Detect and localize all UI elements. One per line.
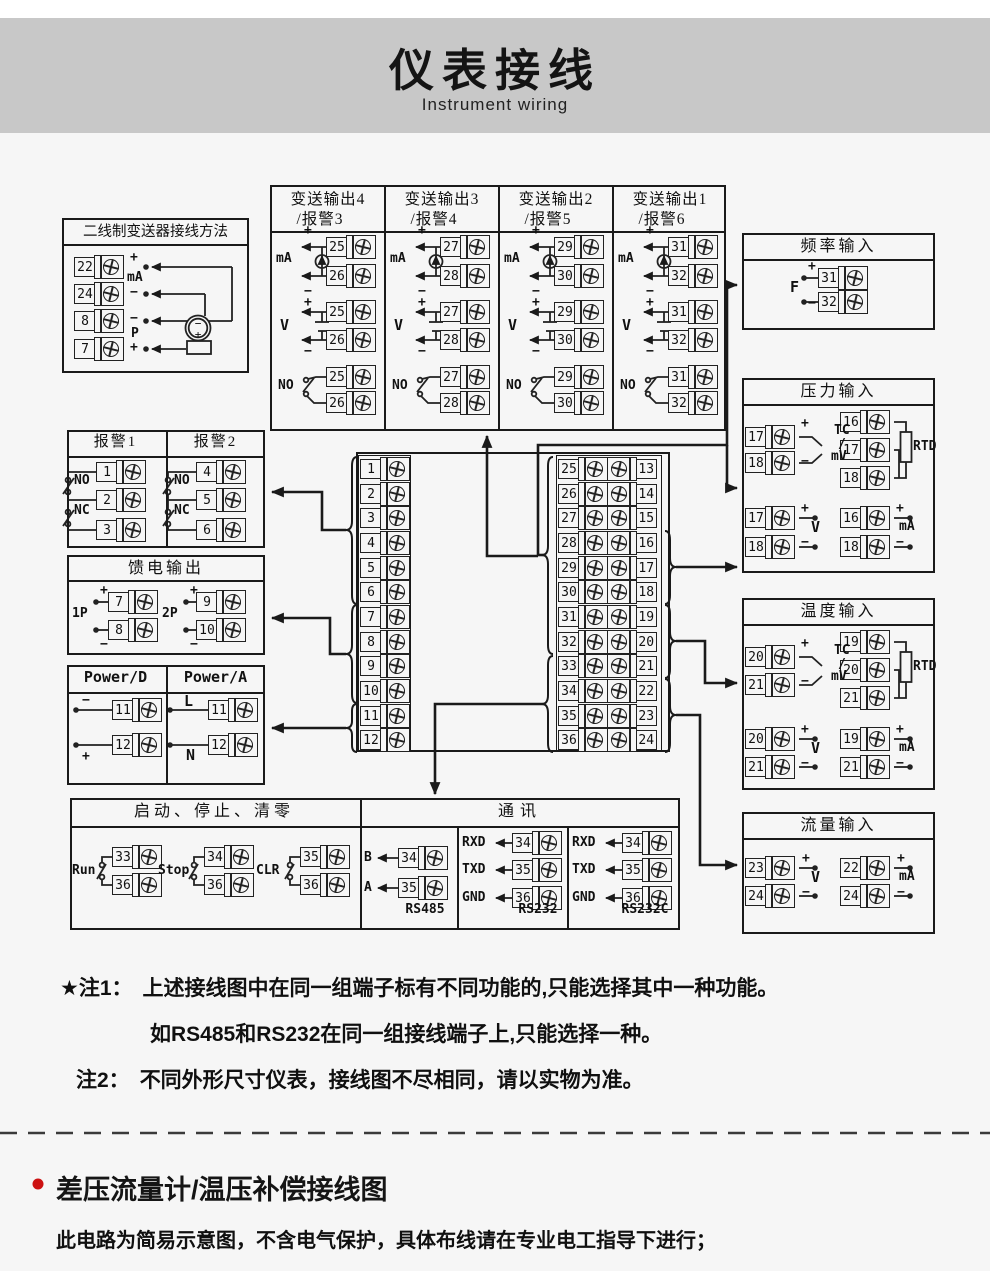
terminal: 17 <box>745 425 795 449</box>
screw-icon <box>102 257 121 276</box>
terminal: 11 <box>112 698 162 722</box>
screw-icon <box>696 330 715 349</box>
terminal-row: 3018 <box>558 580 657 604</box>
terminal: 5 <box>196 488 246 512</box>
terminal: 36 <box>300 873 350 897</box>
terminal: 31 <box>668 235 718 259</box>
screw-icon <box>232 875 251 894</box>
polarity-label: − <box>808 297 816 311</box>
terminal: 9 <box>196 590 246 614</box>
terminal: 30 <box>554 264 604 288</box>
terminal: 5 <box>360 556 410 580</box>
terminal: 12 <box>208 733 258 757</box>
terminal-row: 2715 <box>558 506 657 530</box>
pin-label: TXD <box>572 863 595 877</box>
polarity-label: − <box>801 536 809 550</box>
polarity-label: + <box>802 852 810 866</box>
polarity-label: + <box>896 723 904 737</box>
page-title: 仪表接线 <box>0 34 990 99</box>
screw-icon <box>124 462 143 481</box>
terminal: 18 <box>745 451 795 475</box>
polarity-label: − <box>646 345 654 359</box>
screw-icon <box>586 730 605 749</box>
signal-label: mA <box>504 252 520 266</box>
alarm2-title: 报警2 <box>166 430 265 454</box>
screw-icon <box>468 266 487 285</box>
screw-icon <box>388 533 407 552</box>
screw-icon <box>609 607 628 626</box>
clr-label: CLR <box>256 864 279 878</box>
screw-icon <box>773 729 792 748</box>
comm-title: 通讯 <box>360 799 680 825</box>
screw-icon <box>868 858 887 877</box>
terminal: 36 <box>112 873 162 897</box>
terminal-row: 2614 <box>558 482 657 506</box>
terminal: 10 <box>360 679 410 703</box>
feed-box-title: 馈电输出 <box>69 557 263 582</box>
screw-icon <box>224 620 243 639</box>
signal-label: V <box>280 318 289 332</box>
terminal-row: 2513 <box>558 457 657 481</box>
note-1-label: ★注1： <box>60 972 133 1002</box>
terminal: 16 <box>840 506 890 530</box>
screw-icon <box>609 656 628 675</box>
terminal: 28 <box>440 264 490 288</box>
polarity-label: − <box>802 886 810 900</box>
screw-icon <box>224 592 243 611</box>
signal-label: P <box>131 327 139 341</box>
run-label: Run <box>72 864 95 878</box>
screw-icon <box>650 860 669 879</box>
footer-heading: 差压流量计/温压补偿接线图 <box>56 1168 388 1207</box>
polarity-label: + <box>896 502 904 516</box>
divider <box>272 231 724 233</box>
flow-box-title: 流量输入 <box>744 814 933 840</box>
pin-label: GND <box>572 891 595 905</box>
screw-icon <box>586 508 605 527</box>
signal-label: RTD <box>913 440 936 454</box>
terminal: 7 <box>108 590 158 614</box>
screw-icon <box>696 393 715 412</box>
terminal: 11 <box>360 704 410 728</box>
polarity-label: + <box>801 502 809 516</box>
terminal: 34 <box>398 846 448 870</box>
polarity-label: + <box>532 224 540 238</box>
screw-icon <box>868 660 887 679</box>
polarity-label: − <box>897 886 905 900</box>
screw-icon <box>388 730 407 749</box>
terminal: 6 <box>360 580 410 604</box>
screw-icon <box>468 393 487 412</box>
terminal: 20 <box>745 645 795 669</box>
pin-label: B <box>364 851 372 865</box>
polarity-label: − <box>82 694 90 708</box>
terminal: 18 <box>840 466 890 490</box>
screw-icon <box>586 484 605 503</box>
terminal-22: 22 <box>74 255 124 279</box>
signal-label: V <box>622 318 631 332</box>
divider <box>72 826 678 828</box>
terminal: 23 <box>745 856 795 880</box>
terminal: 26 <box>326 391 376 415</box>
terminal: 21 <box>745 673 795 697</box>
screw-icon <box>140 700 159 719</box>
terminal: 2 <box>360 482 410 506</box>
pin-label: TXD <box>462 863 485 877</box>
footer-note: 此电路为简易示意图，不含电气保护，具体布线请在专业电工指导下进行； <box>56 1224 716 1253</box>
terminal-row: 3624 <box>558 728 657 752</box>
screw-icon <box>540 860 559 879</box>
terminal: 31 <box>668 365 718 389</box>
terminal: 28 <box>440 328 490 352</box>
screw-icon <box>773 757 792 776</box>
screw-icon <box>468 302 487 321</box>
terminal-row: 3119 <box>558 605 657 629</box>
terminal: 4 <box>196 460 246 484</box>
screw-icon <box>773 886 792 905</box>
terminal-row: 3321 <box>558 654 657 678</box>
polarity-label: + <box>532 296 540 310</box>
screw-icon <box>868 468 887 487</box>
polarity-label: + <box>801 637 809 651</box>
screw-icon <box>582 302 601 321</box>
transmit-col-title: 变送输出1/报警6 <box>614 190 726 230</box>
screw-icon <box>354 266 373 285</box>
group-label: 2P <box>162 607 178 621</box>
terminal: 34 <box>512 831 562 855</box>
signal-label: mA <box>618 252 634 266</box>
screw-icon <box>609 582 628 601</box>
signal-label: RTD <box>913 660 936 674</box>
terminal: 8 <box>360 630 410 654</box>
screw-icon <box>609 706 628 725</box>
pin-label: RXD <box>462 836 485 850</box>
polarity-label: − <box>896 757 904 771</box>
terminal-row: 3523 <box>558 704 657 728</box>
screw-icon <box>140 735 159 754</box>
terminal: 31 <box>818 266 868 290</box>
screw-icon <box>868 632 887 651</box>
terminal: 26 <box>326 328 376 352</box>
rs232c-label: RS232C <box>614 903 676 917</box>
terminal: 25 <box>326 365 376 389</box>
terminal: 9 <box>360 654 410 678</box>
line-label: L <box>184 694 193 708</box>
screw-icon <box>582 266 601 285</box>
screw-icon <box>696 237 715 256</box>
signal-label: V <box>394 318 403 332</box>
contact-label: NO <box>174 474 190 488</box>
screw-icon <box>140 847 159 866</box>
screw-icon <box>468 237 487 256</box>
terminal: 24 <box>745 884 795 908</box>
terminal: 35 <box>398 876 448 900</box>
terminal: 19 <box>840 727 890 751</box>
screw-icon <box>388 484 407 503</box>
contact-label: NC <box>174 504 190 518</box>
screw-icon <box>846 268 865 287</box>
contact-label: NO <box>506 379 522 393</box>
contact-label: NC <box>74 504 90 518</box>
screw-icon <box>586 706 605 725</box>
screw-icon <box>582 237 601 256</box>
terminal: 36 <box>204 873 254 897</box>
screw-icon <box>136 592 155 611</box>
temperature-box-title: 温度输入 <box>744 600 933 626</box>
screw-icon <box>586 632 605 651</box>
terminal: 18 <box>840 535 890 559</box>
terminal: 3 <box>360 506 410 530</box>
polarity-label: + <box>130 251 138 265</box>
signal-label: mA <box>899 520 915 534</box>
header-band: 仪表接线 Instrument wiring <box>0 18 990 133</box>
screw-icon <box>868 537 887 556</box>
screw-icon <box>696 367 715 386</box>
terminal: 21 <box>745 755 795 779</box>
terminal: 33 <box>112 845 162 869</box>
signal-label: mV <box>831 450 847 464</box>
contact-label: NO <box>620 379 636 393</box>
terminal: 30 <box>554 391 604 415</box>
neutral-label: N <box>186 748 195 762</box>
screw-icon <box>388 459 407 478</box>
terminal: 29 <box>554 235 604 259</box>
screw-icon <box>124 490 143 509</box>
terminal-24: 24 <box>74 282 124 306</box>
screw-icon <box>354 330 373 349</box>
screw-icon <box>236 735 255 754</box>
terminal: 8 <box>108 618 158 642</box>
screw-icon <box>328 875 347 894</box>
rs485-label: RS485 <box>398 903 452 917</box>
contact-label: NO <box>74 474 90 488</box>
screw-icon <box>773 675 792 694</box>
screw-icon <box>586 582 605 601</box>
two-wire-box-title: 二线制变送器接线方法 <box>64 220 247 246</box>
terminal: 21 <box>840 755 890 779</box>
terminal: 29 <box>554 300 604 324</box>
runstop-title: 启动、停止、清零 <box>70 799 358 825</box>
terminal: 22 <box>840 856 890 880</box>
terminal: 17 <box>745 506 795 530</box>
terminal: 11 <box>208 698 258 722</box>
screw-icon <box>426 848 445 867</box>
terminal: 27 <box>440 235 490 259</box>
divider <box>69 692 263 694</box>
polarity-label: + <box>808 260 816 274</box>
polarity-label: − <box>801 455 809 469</box>
terminal: 32 <box>668 264 718 288</box>
divider <box>457 826 459 928</box>
signal-label: mA <box>276 252 292 266</box>
terminal-row: 3422 <box>558 679 657 703</box>
note-1: ★注1： 上述接线图中在同一组端子标有不同功能的,只能选择其中一种功能。 <box>60 972 778 1002</box>
signal-label: mA <box>899 741 915 755</box>
terminal-row: 3220 <box>558 630 657 654</box>
screw-icon <box>586 558 605 577</box>
screw-icon <box>388 607 407 626</box>
terminal: 34 <box>204 845 254 869</box>
pin-label: RXD <box>572 836 595 850</box>
pin-label: GND <box>462 891 485 905</box>
screw-icon <box>609 533 628 552</box>
screw-icon <box>224 490 243 509</box>
terminal: 20 <box>840 658 890 682</box>
screw-icon <box>388 582 407 601</box>
terminal: 12 <box>112 733 162 757</box>
screw-icon <box>586 459 605 478</box>
terminal: 3 <box>96 518 146 542</box>
page-subtitle: Instrument wiring <box>0 95 990 115</box>
screw-icon <box>224 520 243 539</box>
terminal: 32 <box>668 328 718 352</box>
screw-icon <box>868 440 887 459</box>
screw-icon <box>388 632 407 651</box>
screw-icon <box>388 508 407 527</box>
screw-icon <box>696 302 715 321</box>
screw-icon <box>773 427 792 446</box>
screw-icon <box>354 393 373 412</box>
pressure-box-title: 压力输入 <box>744 380 933 406</box>
terminal: 25 <box>326 300 376 324</box>
terminal: 18 <box>745 535 795 559</box>
divider <box>567 826 569 928</box>
note-2-text: 不同外形尺寸仪表，接线图不尽相同，请以实物为准。 <box>140 1064 644 1094</box>
terminal: 30 <box>554 328 604 352</box>
terminal: 10 <box>196 618 246 642</box>
screw-icon <box>868 729 887 748</box>
polarity-label: + <box>100 584 108 598</box>
terminal: 35 <box>622 858 672 882</box>
polarity-label: − <box>130 312 138 326</box>
terminal: 28 <box>440 391 490 415</box>
polarity-label: + <box>801 417 809 431</box>
screw-icon <box>609 508 628 527</box>
terminal: 31 <box>668 300 718 324</box>
screw-icon <box>388 706 407 725</box>
red-bullet-icon <box>33 1179 44 1190</box>
screw-icon <box>102 339 121 358</box>
screw-icon <box>328 847 347 866</box>
screw-icon <box>136 620 155 639</box>
screw-icon <box>609 459 628 478</box>
polarity-label: + <box>130 341 138 355</box>
polarity-label: + <box>646 224 654 238</box>
group-label: 1P <box>72 607 88 621</box>
screw-icon <box>773 537 792 556</box>
note-2: 注2： 不同外形尺寸仪表，接线图不尽相同，请以实物为准。 <box>76 1064 644 1094</box>
polarity-label: − <box>130 286 138 300</box>
note-1-text: 上述接线图中在同一组端子标有不同功能的,只能选择其中一种功能。 <box>143 972 779 1002</box>
polarity-label: − <box>304 345 312 359</box>
screw-icon <box>773 453 792 472</box>
polarity-label: − <box>100 638 108 652</box>
screw-icon <box>102 311 121 330</box>
screw-icon <box>650 833 669 852</box>
terminal: 7 <box>360 605 410 629</box>
screw-icon <box>102 284 121 303</box>
terminal: 24 <box>840 884 890 908</box>
terminal: 26 <box>326 264 376 288</box>
terminal-7: 7 <box>74 337 124 361</box>
screw-icon <box>582 330 601 349</box>
alarm1-title: 报警1 <box>67 430 164 454</box>
screw-icon <box>609 730 628 749</box>
polarity-label: + <box>304 224 312 238</box>
polarity-label: + <box>418 296 426 310</box>
signal-label: mA <box>899 870 915 884</box>
screw-icon <box>540 833 559 852</box>
contact-label: NO <box>278 379 294 393</box>
screw-icon <box>868 688 887 707</box>
signal-label: V <box>811 741 820 755</box>
screw-icon <box>224 462 243 481</box>
screw-icon <box>846 292 865 311</box>
polarity-label: + <box>897 852 905 866</box>
terminal: 2 <box>96 488 146 512</box>
screw-icon <box>586 681 605 700</box>
terminal-row: 2917 <box>558 556 657 580</box>
screw-icon <box>426 878 445 897</box>
screw-icon <box>609 558 628 577</box>
terminal: 4 <box>360 531 410 555</box>
note-1-line2: 如RS485和RS232在同一组接线端子上,只能选择一种。 <box>150 1018 662 1048</box>
rs232-label: RS232 <box>510 903 566 917</box>
polarity-label: + <box>646 296 654 310</box>
frequency-box-title: 频率输入 <box>744 235 933 261</box>
polarity-label: + <box>801 723 809 737</box>
terminal: 1 <box>360 457 410 481</box>
terminal: 21 <box>840 686 890 710</box>
polarity-label: − <box>896 536 904 550</box>
polarity-label: − <box>801 757 809 771</box>
screw-icon <box>586 656 605 675</box>
screw-icon <box>868 757 887 776</box>
polarity-label: + <box>304 296 312 310</box>
transmit-col-title: 变送输出3/报警4 <box>386 190 498 230</box>
terminal: 35 <box>300 845 350 869</box>
screw-icon <box>388 656 407 675</box>
note-2-label: 注2： <box>76 1064 130 1094</box>
screw-icon <box>582 367 601 386</box>
divider <box>69 456 263 458</box>
instrument-wiring-page: 仪表接线 Instrument wiring <box>0 0 990 1271</box>
terminal: 1 <box>96 460 146 484</box>
screw-icon <box>868 412 887 431</box>
screw-icon <box>582 393 601 412</box>
polarity-label: − <box>532 345 540 359</box>
terminal: 20 <box>745 727 795 751</box>
polarity-label: + <box>418 224 426 238</box>
terminal: 12 <box>360 728 410 752</box>
screw-icon <box>388 681 407 700</box>
stop-label: Stop <box>158 864 189 878</box>
terminal: 32 <box>818 290 868 314</box>
screw-icon <box>468 330 487 349</box>
polarity-label: − <box>801 675 809 689</box>
terminal: 6 <box>196 518 246 542</box>
screw-icon <box>124 520 143 539</box>
signal-label: V <box>811 870 820 884</box>
screw-icon <box>868 886 887 905</box>
signal-label: mA <box>127 271 143 285</box>
screw-icon <box>354 367 373 386</box>
contact-label: NO <box>392 379 408 393</box>
screw-icon <box>354 237 373 256</box>
screw-icon <box>468 367 487 386</box>
signal-label: TC <box>834 644 850 658</box>
screw-icon <box>773 858 792 877</box>
